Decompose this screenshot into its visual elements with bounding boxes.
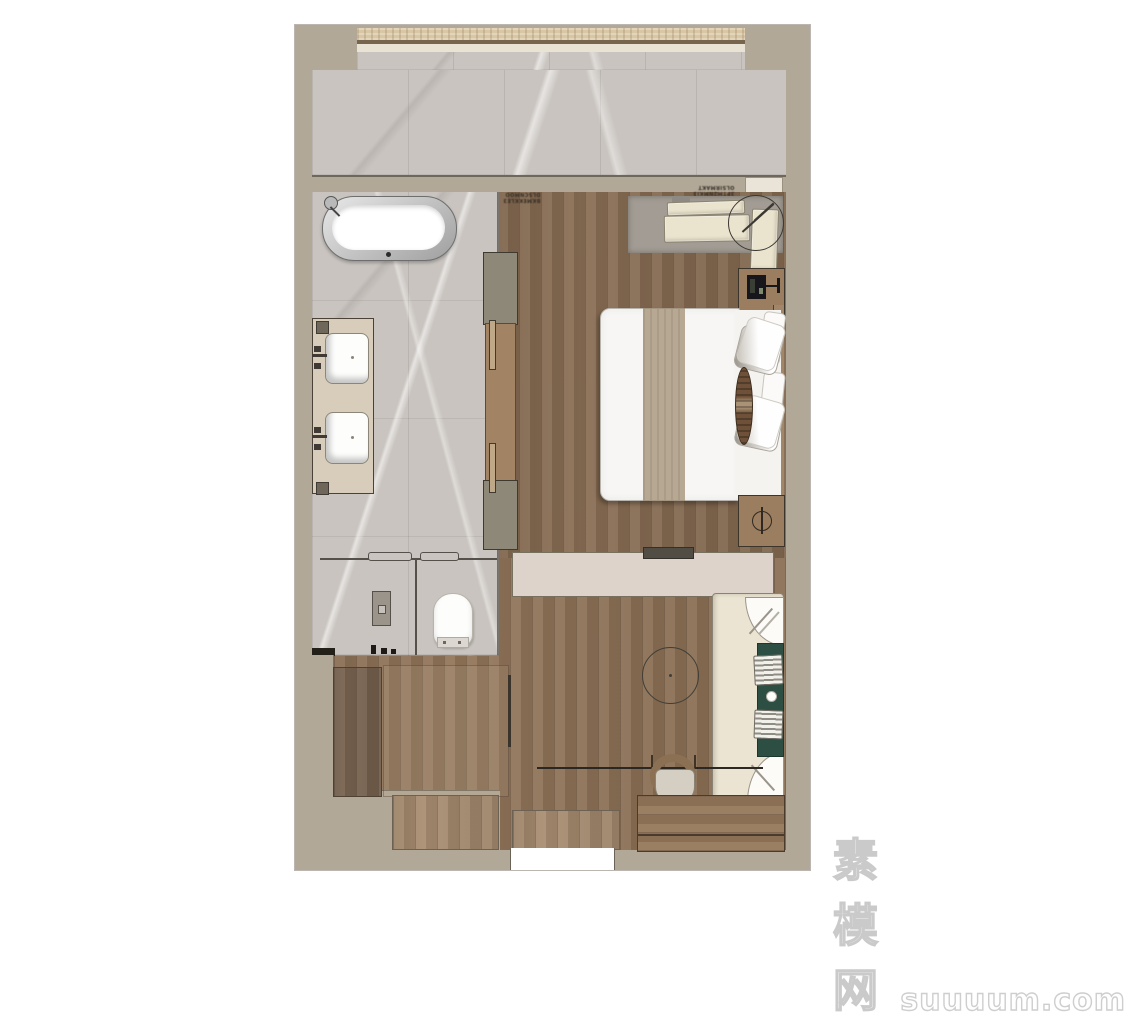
toilet-control-band bbox=[437, 637, 469, 648]
partition-handle bbox=[368, 552, 412, 561]
entry-mat bbox=[512, 810, 620, 850]
partition-line-vertical bbox=[415, 558, 417, 655]
console-divider bbox=[638, 834, 784, 836]
armrest-seam bbox=[758, 611, 779, 634]
bolster-pillow bbox=[735, 367, 753, 445]
floor-plan: BKMEKKLE3 DLSCNMOO 3PTM2NMKI3 OLSIRMAKT bbox=[295, 25, 810, 870]
sink-faucet-handle bbox=[314, 346, 321, 352]
toiletry-item bbox=[391, 649, 396, 654]
vanity-corner-fixture bbox=[316, 482, 329, 495]
annotation-lounge: 3PTM2NMKI3 OLSIRMAKT bbox=[693, 184, 734, 195]
toiletry-item bbox=[371, 645, 376, 654]
wardrobe-handle bbox=[489, 443, 496, 493]
sink bbox=[325, 412, 369, 464]
door-leaf-line bbox=[508, 675, 511, 747]
canvas: { "watermark": { "cjk": "素模网", "latin": … bbox=[0, 0, 1126, 900]
watermark-cjk: 素模网 bbox=[833, 824, 900, 1019]
table-center-dot bbox=[669, 674, 672, 677]
entry-console bbox=[637, 795, 785, 852]
toilet-button bbox=[443, 641, 446, 644]
bed-pillow-zone bbox=[735, 310, 781, 498]
bathtub bbox=[322, 196, 457, 261]
phone-dock bbox=[747, 275, 766, 299]
chair-arm-mark bbox=[651, 755, 653, 767]
dock-bracket bbox=[777, 278, 780, 293]
toilet-button bbox=[458, 641, 461, 644]
dresser bbox=[333, 667, 382, 797]
nightstand bbox=[738, 495, 785, 547]
annotation-line: BKMEKKLE3 bbox=[503, 197, 541, 203]
sink-faucet bbox=[312, 435, 327, 438]
entry-mat bbox=[392, 795, 499, 850]
annotation-line: OLSIRMAKT bbox=[693, 184, 734, 190]
side-table-circle bbox=[728, 195, 784, 251]
shower-drain-plate bbox=[372, 591, 391, 626]
annotation-line: 3PTM2NMKI3 bbox=[693, 190, 734, 196]
vanity-corner-fixture bbox=[316, 321, 329, 334]
shower-drain-square bbox=[378, 605, 386, 614]
phone-screen bbox=[750, 279, 755, 293]
watermark-latin: suuuum.com bbox=[900, 983, 1126, 1018]
bathtub-basin bbox=[332, 205, 445, 250]
entry-door-opening bbox=[510, 848, 615, 870]
watermark: 素模网 suuuum.com bbox=[833, 824, 1126, 1019]
sink-faucet-handle bbox=[314, 363, 321, 369]
sink-drain bbox=[351, 436, 354, 439]
sofa-pillow-striped bbox=[753, 654, 784, 685]
wardrobe-cabinet bbox=[483, 252, 518, 325]
chair-arm-mark bbox=[694, 755, 696, 767]
curtain-band bbox=[357, 28, 745, 40]
sink-drain bbox=[351, 356, 354, 359]
phone-key bbox=[759, 288, 763, 294]
sink bbox=[325, 333, 369, 384]
annotation-bedroom-entry: BKMEKKLE3 DLSCNMOO bbox=[503, 191, 541, 202]
decor-ball bbox=[766, 691, 777, 702]
terrace-floor bbox=[312, 70, 786, 177]
wardrobe-handle bbox=[489, 320, 496, 370]
sofa-pillow-striped bbox=[754, 710, 784, 740]
sink-faucet-handle bbox=[314, 427, 321, 433]
wall-left-lower bbox=[295, 655, 334, 870]
partition-handle bbox=[420, 552, 459, 561]
toiletry-item bbox=[381, 648, 387, 654]
sink-faucet bbox=[312, 354, 327, 357]
annotation-line: DLSCNMOO bbox=[503, 191, 541, 197]
sink-faucet-handle bbox=[314, 444, 321, 450]
bathtub-drain bbox=[386, 252, 391, 257]
lamp-symbol-icon bbox=[761, 507, 763, 534]
round-table bbox=[642, 647, 699, 704]
terrace-floor-upper bbox=[357, 52, 745, 70]
tv bbox=[643, 547, 694, 559]
entry-mat-boundary bbox=[383, 665, 509, 797]
bed-runner bbox=[643, 308, 685, 501]
